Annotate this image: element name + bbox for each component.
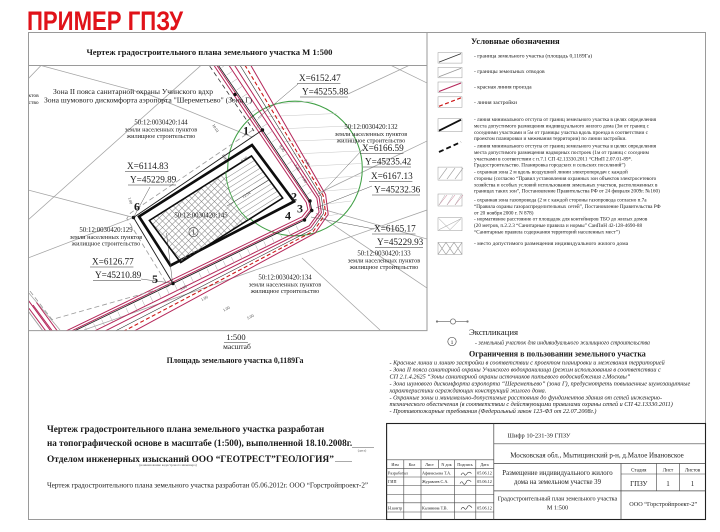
svg-text:места допустимого размещения и: места допустимого размещения индивидуаль… [474,122,650,129]
svg-text:Кол: Кол [409,462,416,467]
svg-text:05.06.12: 05.06.12 [477,479,492,484]
svg-text:участками в соответствии с п.7: участками в соответствии с п.7.1 СП 42.1… [474,155,632,162]
svg-text:соседними участками и 5м от г: соседними участками и 5м от границы учас… [474,130,649,136]
svg-text:ПРИМЕР ГПЗУ: ПРИМЕР ГПЗУ [27,6,183,36]
svg-text:Калинина Т.В.: Калинина Т.В. [422,506,448,511]
svg-text:3: 3 [297,202,303,216]
svg-text:Y=45235.42: Y=45235.42 [365,157,412,167]
svg-text:N док: N док [441,462,452,467]
svg-text:Н.контр: Н.контр [388,506,402,511]
svg-text:Y=45255.88: Y=45255.88 [302,87,349,97]
svg-text:границах таких зон”, Постановл: границах таких зон”, Постановление Прави… [474,188,660,195]
svg-text:ГИП: ГИП [388,479,396,484]
svg-text:жилищное строительство: жилищное строительство [250,288,320,295]
svg-text:- Противопожарные требования (: - Противопожарные требования (Федеральны… [390,408,597,415]
svg-text:Y=45229.89: Y=45229.89 [130,175,177,185]
svg-text:хозяйства и особых условий исп: хозяйства и особых условий использования… [474,181,658,188]
svg-text:жилищное строительство: жилищное строительство [126,133,196,140]
svg-text:50:12:0030420:144: 50:12:0030420:144 [134,120,188,127]
svg-text:проектом планировки и межевани: проектом планировки и межевания территор… [474,135,627,142]
svg-text:Градостроительство. Планировка: Градостроительство. Планировка городских… [474,162,626,169]
svg-text:05.06.12: 05.06.12 [477,471,492,476]
svg-text:1:500: 1:500 [226,332,245,342]
svg-text:Афанасьева Т.А.: Афанасьева Т.А. [422,471,451,476]
svg-text:- линия минимального отступа о: - линия минимального отступа от границ з… [474,117,657,123]
svg-text:- границы земельных отводов: - границы земельных отводов [474,69,545,75]
svg-text:- место допустимого размещения: - место допустимого размещения индивидуа… [474,241,629,247]
svg-text:50:12:0030420:129: 50:12:0030420:129 [79,227,133,234]
svg-text:- линия застройки: - линия застройки [474,99,517,106]
svg-text:Чертеж градостроительного план: Чертеж градостроительного плана земельно… [47,424,325,434]
svg-text:- Зона шумового дискомфорта аэ: - Зона шумового дискомфорта аэропорта “Ш… [390,380,691,387]
svg-text:(наименование кадастрового инж: (наименование кадастрового инженера) [139,463,196,467]
svg-text:ктов: ктов [29,93,40,99]
svg-text:X=6152.47: X=6152.47 [299,73,341,83]
svg-text:- Красные линии и линию застро: - Красные линии и линию застройки в соот… [390,360,665,367]
svg-text:ГПЗУ: ГПЗУ [630,480,647,488]
svg-text:Листов: Листов [685,469,701,474]
svg-text:Y=45229.93: Y=45229.93 [377,237,424,247]
svg-text:Y=45210.89: Y=45210.89 [95,270,142,280]
svg-text:Лист: Лист [425,462,434,467]
svg-text:дома на земельном участке 39: дома на земельном участке 39 [514,479,602,486]
svg-text:масштаб: масштаб [223,342,251,351]
svg-text:Дата: Дата [480,462,488,467]
svg-text:Градостроительный план земельн: Градостроительный план земельного участк… [498,496,618,503]
svg-text:4: 4 [285,209,291,223]
svg-text:Разработал: Разработал [388,471,408,476]
svg-text:- Охранные зоны и минимально-д: - Охранные зоны и минимально-допустимые … [390,394,663,401]
svg-text:50:12:0030420:145: 50:12:0030420:145 [174,213,228,220]
svg-text:1: 1 [192,229,195,236]
svg-text:6: 6 [134,200,140,214]
svg-text:ООО “Горстройпроект-2”: ООО “Горстройпроект-2” [629,501,697,508]
svg-text:- нормативное расстояние от пл: - нормативное расстояние от площадок для… [474,216,648,223]
svg-text:Ограничения в пользовании земе: Ограничения в пользовании земельного уча… [469,350,646,359]
svg-text:1: 1 [243,124,249,138]
svg-text:Стадия: Стадия [631,469,647,474]
svg-text:Экспликация: Экспликация [469,327,518,337]
svg-text:ство: ство [29,100,39,106]
svg-text:Шифр 10-231-39 ГПЗУ: Шифр 10-231-39 ГПЗУ [508,433,571,440]
svg-text:Условные обозначения: Условные обозначения [471,36,560,46]
svg-text:- охранная зона 2 м вдоль возд: - охранная зона 2 м вдоль воздушной лини… [474,169,628,176]
svg-text:5: 5 [152,272,158,286]
svg-text:Чертеж градостроительного план: Чертеж градостроительного плана земельно… [47,482,368,490]
svg-text:Зона шумового дискомфорта аэро: Зона шумового дискомфорта аэропорта "Шер… [44,95,252,104]
svg-text:Лист: Лист [663,469,674,474]
svg-text:(20 метров, п.2.2.3 “Санитарны: (20 метров, п.2.2.3 “Санитарные правила … [474,222,642,229]
svg-text:Размещение индивидуального жил: Размещение индивидуального жилого [502,470,613,477]
svg-text:05.06.12: 05.06.12 [477,506,492,511]
svg-text:X=6167.13: X=6167.13 [371,171,413,181]
svg-text:Подпись: Подпись [457,462,472,467]
svg-text:- граница земельного участка (: - граница земельного участка (площадь 0,… [474,53,592,60]
svg-text:X=6166.59: X=6166.59 [362,143,404,153]
svg-text:М 1:500: М 1:500 [547,505,568,512]
svg-text:50:12:0030420:134: 50:12:0030420:134 [258,275,312,282]
svg-text:1: 1 [451,340,454,346]
svg-text:1: 1 [691,480,695,488]
svg-text:“Санитарные правила содержания: “Санитарные правила содержания территори… [474,228,620,235]
svg-text:технического обеспечения (в со: технического обеспечения (в соответствии… [390,401,673,408]
svg-text:X=6165.17: X=6165.17 [374,224,416,234]
svg-text:X=6114.83: X=6114.83 [127,161,169,171]
svg-text:- земельный участок для индиви: - земельный участок для индивидуального … [475,340,650,347]
svg-text:жилищное строительство: жилищное строительство [349,264,419,271]
svg-text:Журавлев С.А.: Журавлев С.А. [422,479,448,484]
svg-text:Площадь земельного участка 0,1: Площадь земельного участка 0,1189Га [167,356,304,365]
svg-text:- линия минимального отступа о: - линия минимального отступа от границ з… [474,144,657,150]
svg-text:1: 1 [666,480,670,488]
svg-text:стороны (согласно “Правил уста: стороны (согласно “Правил установления о… [474,175,657,182]
svg-text:от 20 ноября 2000 г. N 878): от 20 ноября 2000 г. N 878) [474,209,534,216]
svg-text:50:12:0030420:133: 50:12:0030420:133 [357,251,411,258]
svg-text:- Зона II пояса санитарной охр: - Зона II пояса санитарной охраны Учинск… [390,366,661,373]
svg-text:“Правила охраны газораспредели: “Правила охраны газораспределительных се… [474,203,661,210]
svg-text:Изм: Изм [391,462,399,467]
svg-text:на топографической основе в ма: на топографической основе в масштабе (1:… [47,438,352,448]
svg-text:жилищное строительство: жилищное строительство [71,241,141,248]
svg-text:характеристики ограждающих кон: характеристики ограждающих конструкций ж… [389,387,547,394]
svg-text:50:12:0030420:132: 50:12:0030420:132 [344,124,398,131]
svg-text:- красная линия проезда: - красная линия проезда [474,85,532,91]
svg-text:X=6126.77: X=6126.77 [92,257,134,267]
svg-text:(дата): (дата) [358,448,366,452]
svg-text:Московская обл., Мытищинский р: Московская обл., Мытищинский р-н, д.Мало… [510,452,684,460]
svg-text:СП 2.1.4.2625 “Зоны санитарной: СП 2.1.4.2625 “Зоны санитарной охраны ис… [390,373,631,380]
svg-text:Чертеж градостроительного план: Чертеж градостроительного плана земельно… [87,47,333,57]
svg-text:- охранная зона газопровода (: - охранная зона газопровода (2 м с каждо… [474,197,647,204]
svg-text:Y=45232.36: Y=45232.36 [374,185,421,195]
svg-text:места допустимого размещения н: места допустимого размещения надворных п… [474,149,650,156]
